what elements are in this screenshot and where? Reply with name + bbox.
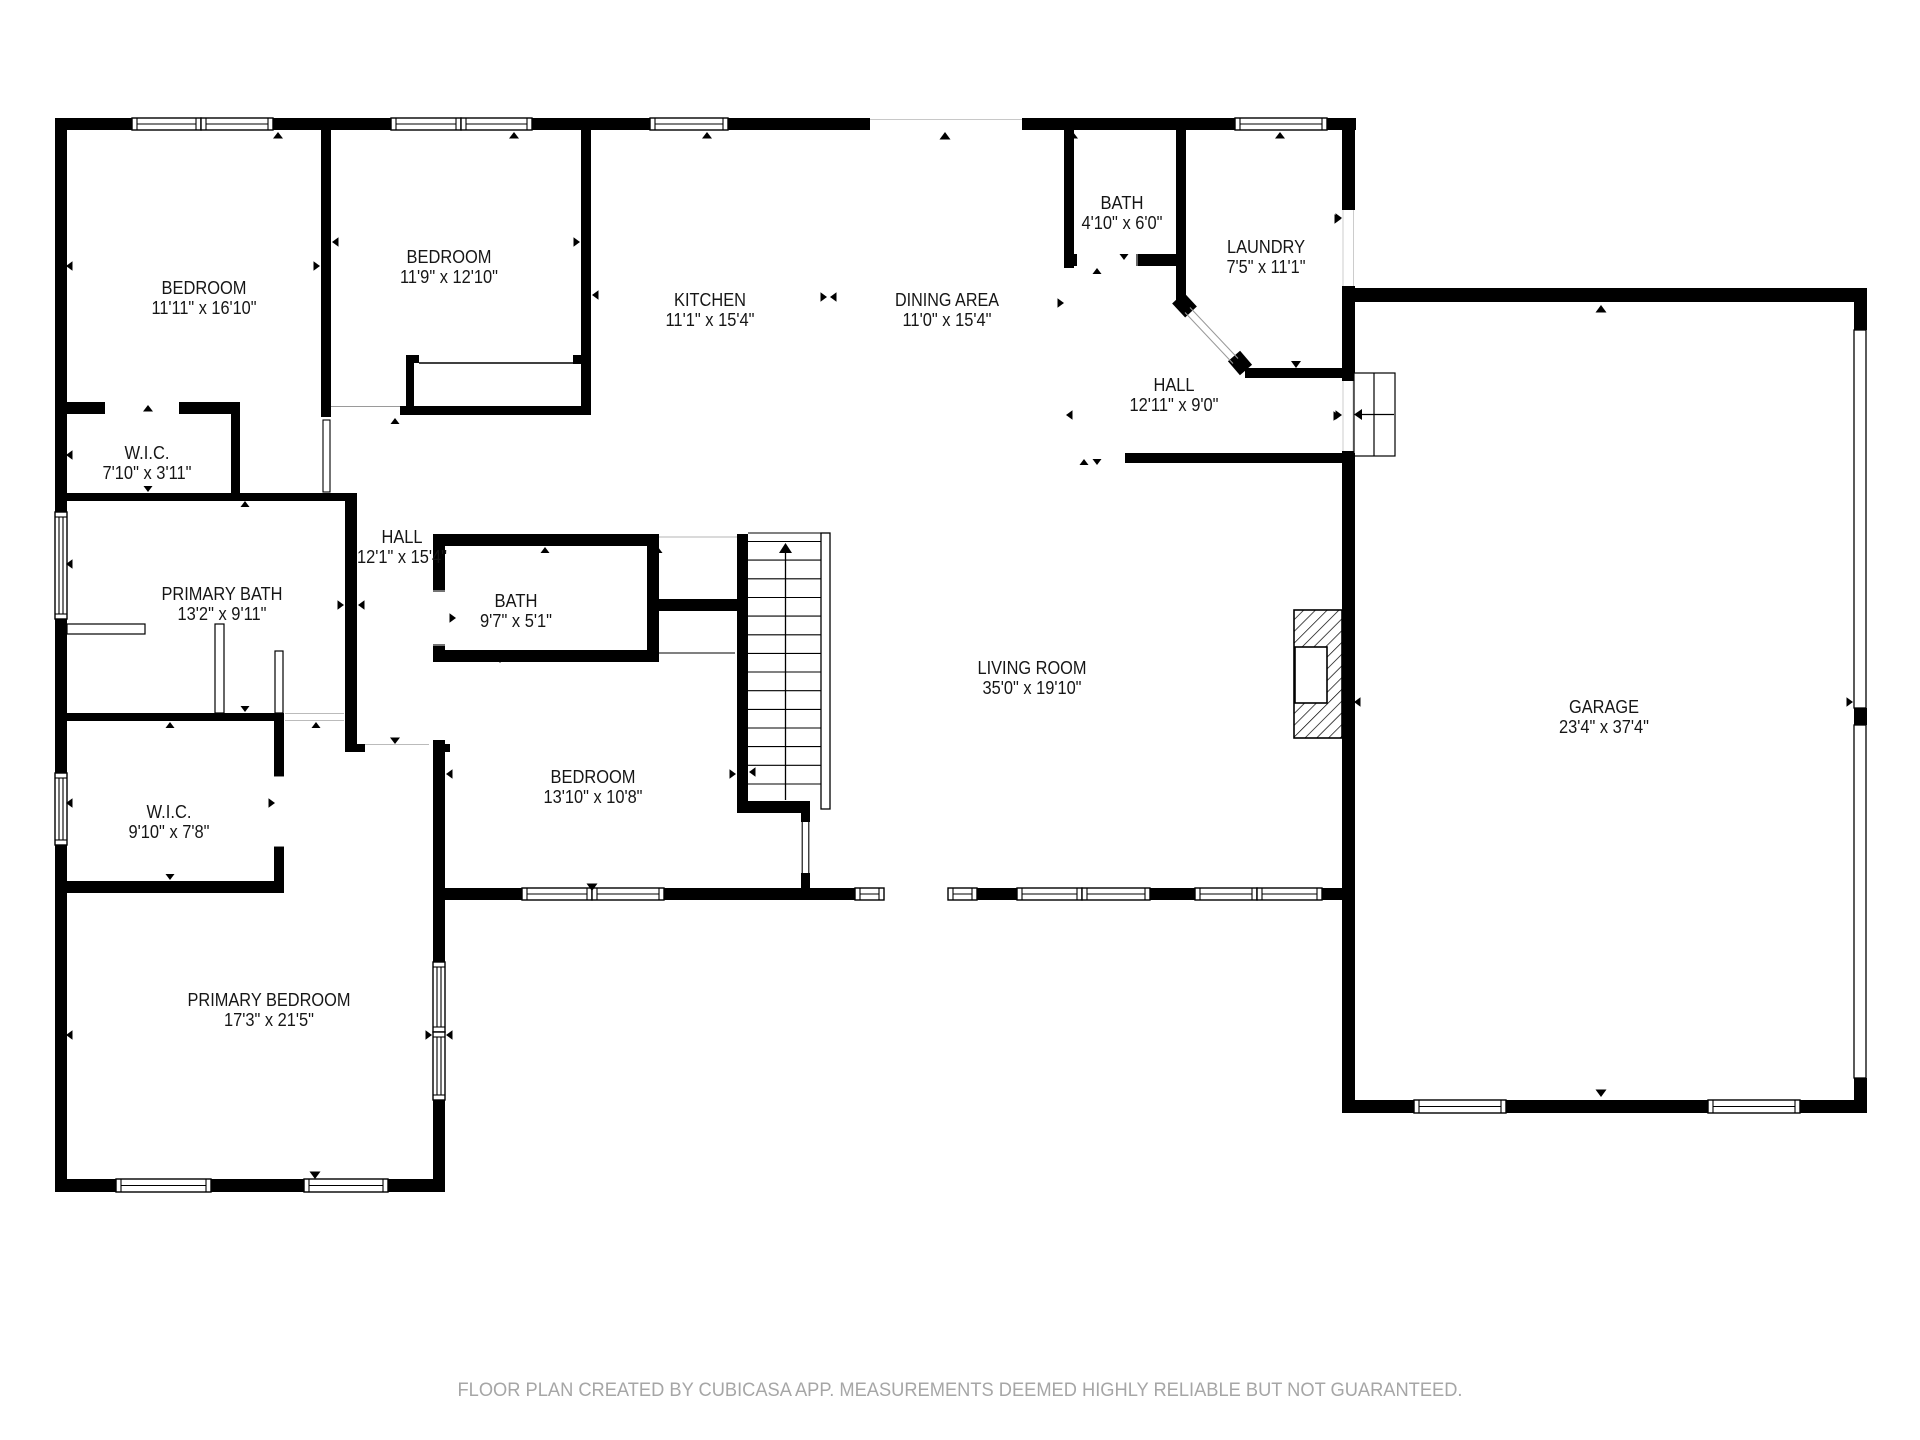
svg-text:9'10" x 7'8": 9'10" x 7'8" xyxy=(129,821,210,842)
svg-text:HALL: HALL xyxy=(1154,374,1195,395)
svg-text:11'11" x 16'10": 11'11" x 16'10" xyxy=(152,297,257,318)
svg-text:PRIMARY BEDROOM: PRIMARY BEDROOM xyxy=(188,989,351,1010)
svg-text:KITCHEN: KITCHEN xyxy=(674,289,746,310)
svg-text:BEDROOM: BEDROOM xyxy=(407,246,492,267)
svg-text:7'5" x 11'1": 7'5" x 11'1" xyxy=(1227,256,1306,277)
svg-text:BATH: BATH xyxy=(495,590,538,611)
svg-text:23'4" x 37'4": 23'4" x 37'4" xyxy=(1559,716,1649,737)
svg-text:BEDROOM: BEDROOM xyxy=(162,277,247,298)
svg-text:FLOOR PLAN CREATED BY CUBICASA: FLOOR PLAN CREATED BY CUBICASA APP. MEAS… xyxy=(458,1379,1463,1401)
svg-text:35'0" x 19'10": 35'0" x 19'10" xyxy=(983,677,1082,698)
svg-text:12'1" x 15'4": 12'1" x 15'4" xyxy=(357,546,447,567)
svg-text:12'11" x 9'0": 12'11" x 9'0" xyxy=(1130,394,1219,415)
svg-text:13'10" x 10'8": 13'10" x 10'8" xyxy=(544,786,643,807)
svg-text:DINING AREA: DINING AREA xyxy=(895,289,1000,310)
svg-text:LIVING ROOM: LIVING ROOM xyxy=(978,657,1087,678)
svg-text:4'10" x 6'0": 4'10" x 6'0" xyxy=(1082,212,1163,233)
svg-text:11'1" x 15'4": 11'1" x 15'4" xyxy=(666,309,755,330)
svg-text:LAUNDRY: LAUNDRY xyxy=(1227,236,1305,257)
svg-text:11'0" x 15'4": 11'0" x 15'4" xyxy=(903,309,992,330)
svg-text:BATH: BATH xyxy=(1101,192,1144,213)
svg-text:PRIMARY BATH: PRIMARY BATH xyxy=(162,583,283,604)
svg-text:13'2" x 9'11": 13'2" x 9'11" xyxy=(178,603,267,624)
svg-text:7'10" x 3'11": 7'10" x 3'11" xyxy=(103,462,192,483)
svg-text:W.I.C.: W.I.C. xyxy=(147,801,192,822)
svg-text:GARAGE: GARAGE xyxy=(1569,696,1639,717)
svg-text:HALL: HALL xyxy=(382,526,423,547)
svg-text:W.I.C.: W.I.C. xyxy=(125,442,170,463)
svg-text:11'9" x 12'10": 11'9" x 12'10" xyxy=(400,266,498,287)
svg-text:17'3" x 21'5": 17'3" x 21'5" xyxy=(224,1009,314,1030)
svg-text:BEDROOM: BEDROOM xyxy=(551,766,636,787)
svg-text:9'7" x 5'1": 9'7" x 5'1" xyxy=(480,610,552,631)
